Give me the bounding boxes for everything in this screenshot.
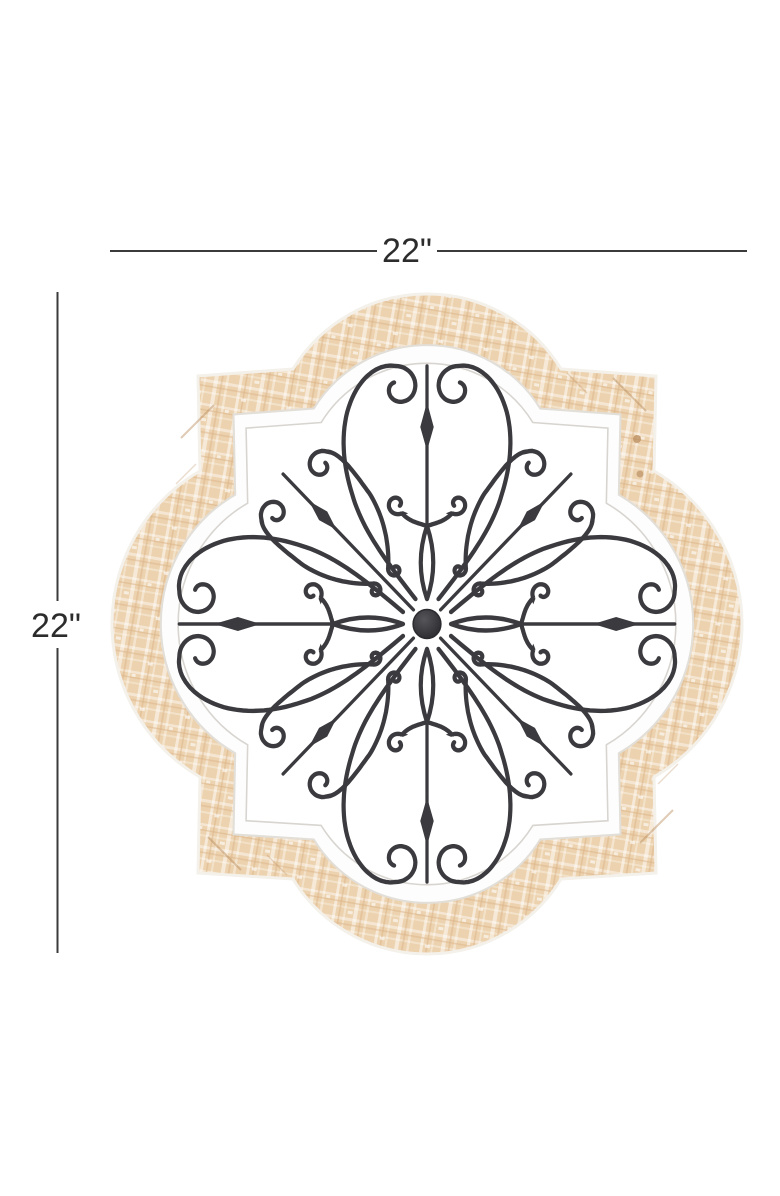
- height-dimension: 22": [31, 292, 81, 953]
- wood-knot-hole: [637, 471, 644, 478]
- wood-knot-hole: [633, 435, 641, 443]
- height-dimension-label: 22": [31, 607, 81, 645]
- wall-decor-product: [112, 294, 742, 954]
- width-dimension-label: 22": [382, 232, 432, 270]
- center-medallion: [413, 610, 441, 639]
- product-dimension-photo: 22" 22": [0, 0, 780, 1196]
- width-dimension: 22": [110, 232, 747, 270]
